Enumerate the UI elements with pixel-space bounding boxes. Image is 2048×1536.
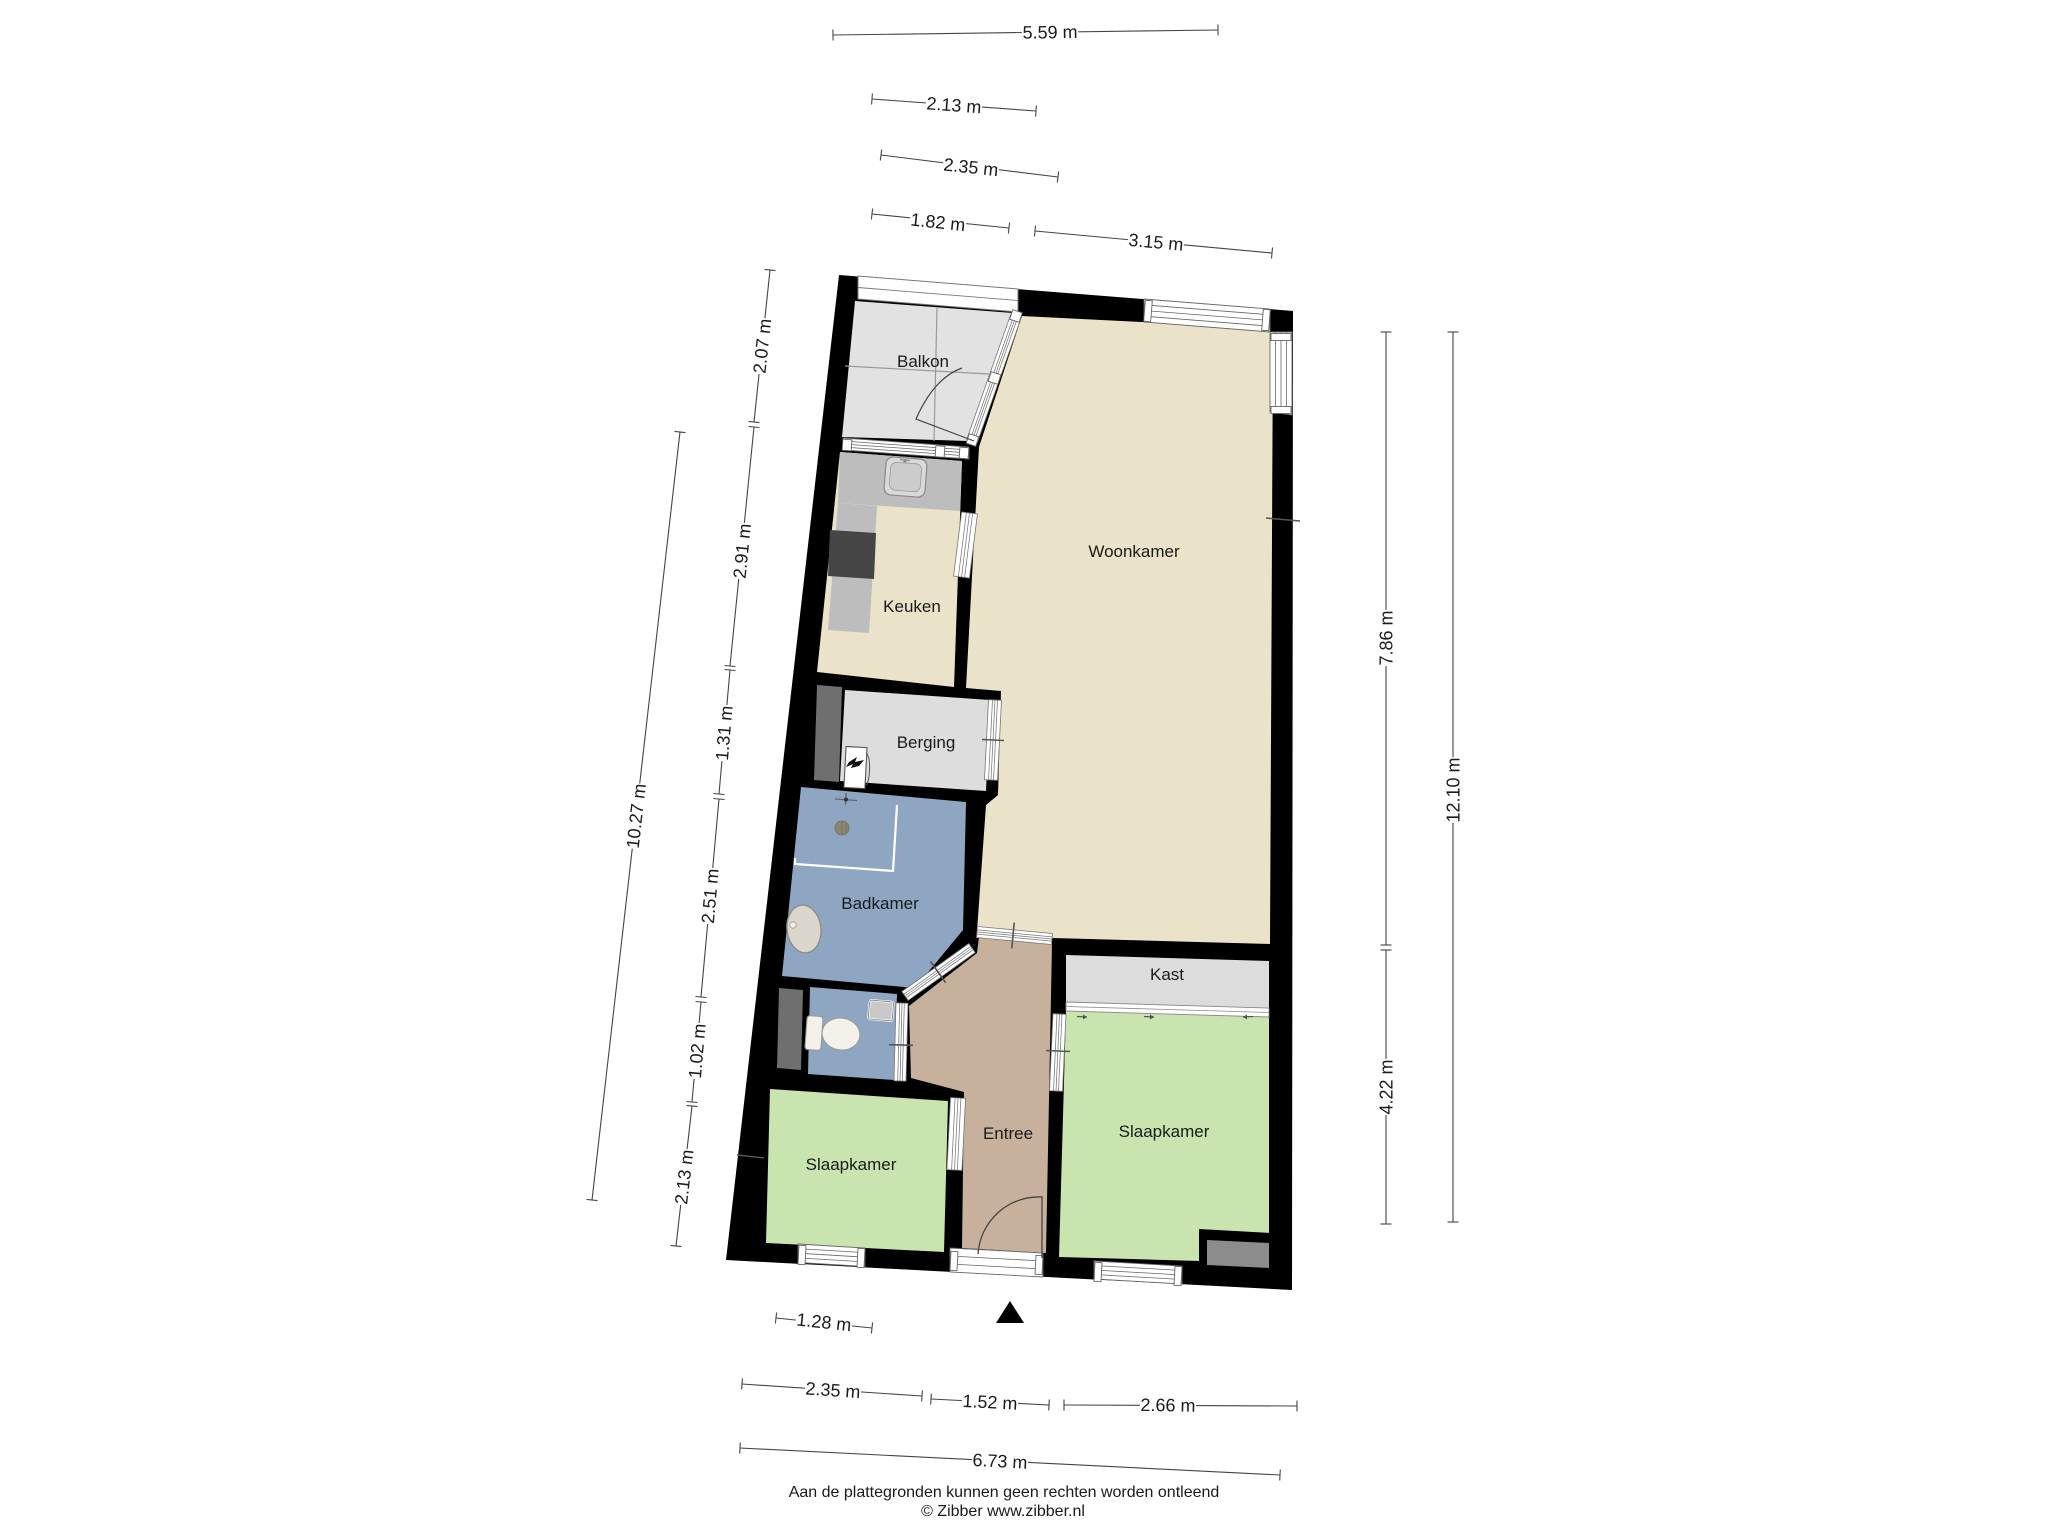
svg-text:Badkamer: Badkamer	[841, 894, 919, 913]
svg-text:Entree: Entree	[983, 1124, 1033, 1143]
svg-text:Aan de plattegronden kunnen ge: Aan de plattegronden kunnen geen rechten…	[789, 1484, 1220, 1501]
svg-text:Slaapkamer: Slaapkamer	[1119, 1122, 1210, 1141]
svg-text:1.52 m: 1.52 m	[962, 1391, 1018, 1414]
svg-text:7.86 m: 7.86 m	[1376, 610, 1396, 665]
svg-text:Woonkamer: Woonkamer	[1088, 542, 1180, 561]
svg-text:Kast: Kast	[1150, 965, 1184, 984]
svg-text:5.59 m: 5.59 m	[1022, 22, 1077, 43]
svg-text:© Zibber www.zibber.nl: © Zibber www.zibber.nl	[921, 1503, 1085, 1520]
svg-text:6.73 m: 6.73 m	[972, 1450, 1028, 1473]
svg-text:Balkon: Balkon	[897, 352, 949, 371]
svg-text:12.10 m: 12.10 m	[1443, 757, 1463, 822]
svg-text:2.66 m: 2.66 m	[1140, 1395, 1195, 1416]
svg-text:2.35 m: 2.35 m	[805, 1378, 861, 1402]
svg-text:Keuken: Keuken	[883, 597, 941, 616]
svg-text:Berging: Berging	[897, 733, 956, 752]
svg-text:4.22 m: 4.22 m	[1376, 1059, 1396, 1114]
svg-text:2.13 m: 2.13 m	[926, 93, 982, 117]
svg-text:Slaapkamer: Slaapkamer	[806, 1155, 897, 1174]
